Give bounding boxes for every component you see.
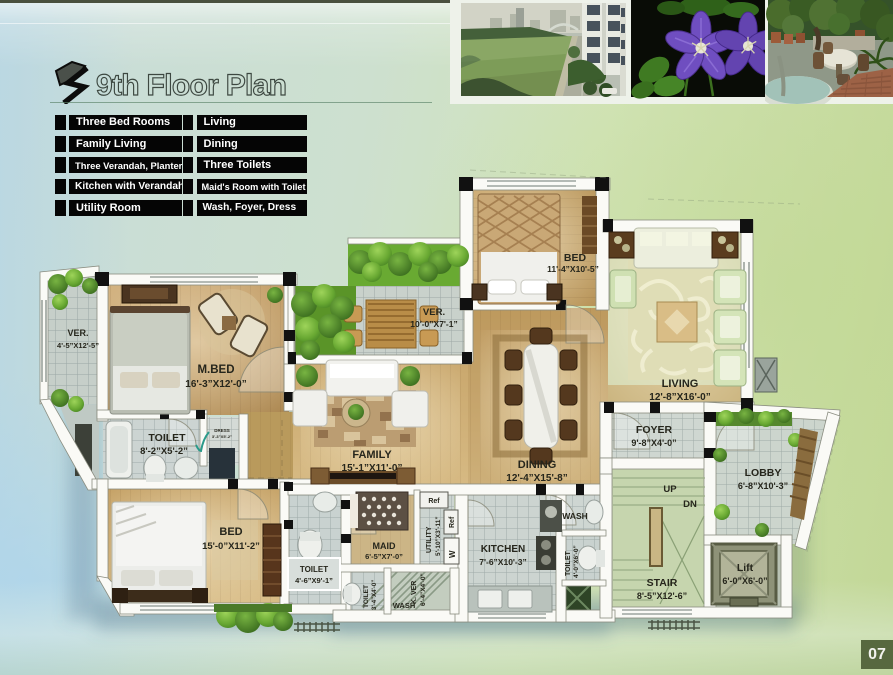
svg-text:VER.: VER. [67, 328, 88, 338]
svg-text:7'-6”X10'-3”: 7'-6”X10'-3” [479, 557, 527, 567]
svg-text:FOYER: FOYER [636, 424, 673, 436]
svg-text:LOBBY: LOBBY [745, 467, 782, 479]
svg-text:UTILITY: UTILITY [426, 526, 433, 553]
svg-text:DINING: DINING [518, 459, 557, 471]
svg-text:8'-5”X12'-6”: 8'-5”X12'-6” [637, 591, 687, 601]
svg-text:Lift: Lift [737, 562, 754, 574]
svg-text:M.BED: M.BED [197, 364, 234, 376]
svg-text:4'-6”X9'-1”: 4'-6”X9'-1” [295, 576, 333, 585]
svg-text:VER.: VER. [423, 307, 445, 318]
svg-text:TOILET: TOILET [565, 551, 572, 576]
svg-text:11'-4”X10'-5”: 11'-4”X10'-5” [547, 264, 599, 274]
svg-text:3'-4”X4'-0”: 3'-4”X4'-0” [372, 580, 378, 610]
svg-text:DRESS: DRESS [214, 428, 230, 433]
svg-text:WASH: WASH [562, 511, 588, 521]
svg-text:BED: BED [219, 526, 242, 538]
svg-text:4'-5”X12'-5”: 4'-5”X12'-5” [57, 341, 99, 350]
svg-text:LIVING: LIVING [662, 378, 699, 390]
svg-text:10'-0”X7'-1”: 10'-0”X7'-1” [410, 319, 458, 329]
svg-text:FAMILY: FAMILY [352, 449, 392, 461]
svg-text:6'-0”X6'-0”: 6'-0”X6'-0” [722, 576, 767, 586]
svg-text:6'-4”X4'-0”: 6'-4”X4'-0” [420, 573, 427, 606]
svg-text:W: W [448, 550, 457, 558]
svg-text:STAIR: STAIR [647, 577, 678, 589]
svg-text:MAID: MAID [373, 541, 396, 551]
svg-text:4'-0”X6'-0”: 4'-0”X6'-0” [573, 545, 580, 578]
svg-text:9'-8”X4'-0”: 9'-8”X4'-0” [631, 438, 676, 448]
svg-text:KITCHEN: KITCHEN [481, 544, 525, 555]
svg-text:6'-8”X10'-3”: 6'-8”X10'-3” [738, 481, 788, 491]
svg-text:6'-5”X7'-0”: 6'-5”X7'-0” [365, 552, 403, 561]
svg-text:8'-2”X5'-2”: 8'-2”X5'-2” [140, 446, 188, 457]
svg-text:15'-1”X11'-0”: 15'-1”X11'-0” [342, 463, 403, 474]
svg-text:12'-8”X16'-0”: 12'-8”X16'-0” [649, 392, 710, 403]
svg-text:5'-10”X3'-11”: 5'-10”X3'-11” [435, 516, 442, 556]
svg-text:3'-3”X5'-2”: 3'-3”X5'-2” [212, 434, 232, 439]
svg-text:Ref: Ref [428, 498, 440, 505]
svg-text:Ref: Ref [449, 516, 456, 528]
svg-text:BED: BED [564, 252, 587, 264]
svg-text:TOILET: TOILET [300, 565, 328, 574]
svg-text:15'-0”X11'-2”: 15'-0”X11'-2” [202, 541, 260, 552]
svg-text:WASH: WASH [393, 601, 416, 610]
svg-text:TOILET: TOILET [148, 432, 186, 444]
svg-text:UP: UP [663, 484, 677, 495]
svg-text:16'-3”X12'-0”: 16'-3”X12'-0” [185, 379, 246, 390]
svg-text:12'-4”X15'-8”: 12'-4”X15'-8” [506, 473, 567, 484]
svg-text:DN: DN [683, 499, 697, 510]
svg-text:TOILET: TOILET [363, 585, 370, 608]
